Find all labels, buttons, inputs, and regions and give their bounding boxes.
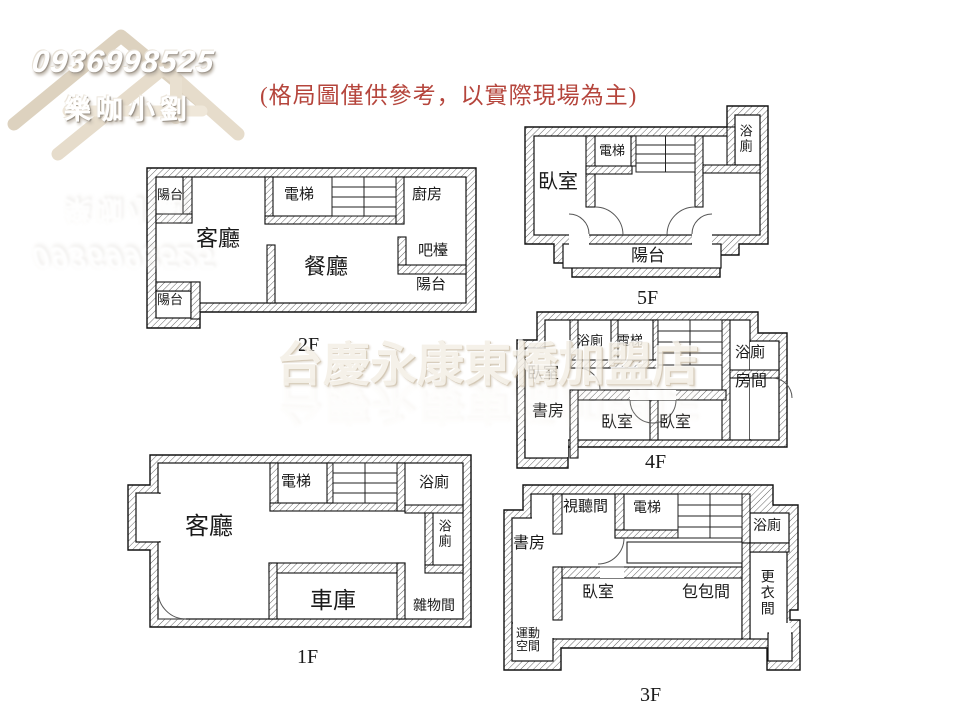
floorplan-1f: 客廳 電梯 浴廁 浴廁 車庫 雜物間: [127, 453, 473, 631]
room-label-dining: 餐廳: [304, 255, 348, 278]
room-label-living: 客廳: [185, 515, 233, 540]
room-label-elevator: 電梯: [599, 144, 625, 158]
floorplan-4f: 浴廁 電梯 浴廁 臥室 書房 房間 臥室 臥室: [513, 310, 803, 472]
room-label-bath-top: 浴廁: [419, 476, 449, 492]
room-label-bags: 包包間: [682, 585, 730, 602]
agency-logo: 0936998525 樂咖小劉: [6, 6, 256, 191]
room-label-bath-top: 浴廁: [577, 334, 603, 348]
room-label-elevator: 電梯: [633, 502, 661, 517]
floorplan-5f: 臥室 電梯 浴廁 陽台: [524, 105, 772, 281]
floorplan-4f-drawing: [513, 310, 803, 472]
room-label-living: 客廳: [196, 227, 240, 250]
door-opening: [630, 390, 676, 400]
room-label-elevator: 電梯: [281, 475, 311, 491]
closet-box: [627, 542, 742, 563]
stairs-icon: [332, 177, 396, 216]
room-label-balcony-tl: 陽台: [157, 188, 183, 202]
room-label-bath: 浴廁: [738, 124, 752, 154]
room-label-bath: 浴廁: [753, 520, 781, 535]
room-label-dressing: 更衣間: [758, 569, 773, 617]
stairs-icon: [333, 463, 397, 503]
room-label-room: 房間: [735, 374, 767, 391]
floorplan-page: { "disclaimer": "(格局圖僅供參考，以實際現場為主)", "lo…: [0, 0, 960, 720]
room-label-bath-right: 浴廁: [437, 519, 451, 549]
watermark-agent-name: 樂咖小劉: [64, 88, 192, 127]
room-label-balcony-bl: 陽台: [157, 293, 183, 307]
room-label-bedroom-left: 臥室: [527, 366, 559, 383]
floor-label-5f: 5F: [637, 287, 658, 310]
room-label-balcony-r: 陽台: [416, 278, 446, 294]
room-label-storage: 雜物間: [413, 600, 455, 615]
room-label-elevator: 電梯: [617, 334, 643, 348]
stairs-icon: [658, 320, 722, 365]
room-label-study: 書房: [513, 536, 545, 553]
floor-label-4f: 4F: [645, 451, 666, 474]
stairs-icon: [636, 136, 695, 172]
room-label-elevator: 電梯: [284, 188, 314, 204]
door-opening: [600, 567, 624, 578]
floorplan-2f: 陽台 客廳 電梯 廚房 餐廳 吧檯 陽台 陽台: [146, 167, 478, 331]
room-label-bath-right: 浴廁: [735, 346, 765, 362]
floor-label-1f: 1F: [297, 646, 318, 669]
room-label-exercise: 運動空間: [516, 627, 542, 652]
room-label-bedroom: 臥室: [582, 585, 614, 602]
floor-label-3f: 3F: [640, 684, 661, 707]
room-label-study: 書房: [532, 404, 564, 421]
floorplan-3f: 書房 視聽間 電梯 浴廁 臥室 包包間 更衣間 運動空間: [503, 483, 803, 673]
room-label-bedroom: 臥室: [538, 172, 578, 193]
stairs-icon: [678, 494, 742, 538]
room-label-kitchen: 廚房: [412, 188, 442, 204]
floor-label-2f: 2F: [298, 334, 319, 357]
room-label-bar: 吧檯: [418, 244, 448, 260]
room-label-av: 視聽間: [563, 500, 608, 516]
room-label-bedroom-b1: 臥室: [601, 415, 633, 432]
room-label-garage: 車庫: [310, 589, 356, 613]
room-label-balcony: 陽台: [631, 247, 665, 265]
room-label-bedroom-b2: 臥室: [659, 415, 691, 432]
disclaimer-text: (格局圖僅供參考，以實際現場為主): [260, 76, 637, 110]
watermark-phone: 0936998525: [30, 44, 216, 80]
